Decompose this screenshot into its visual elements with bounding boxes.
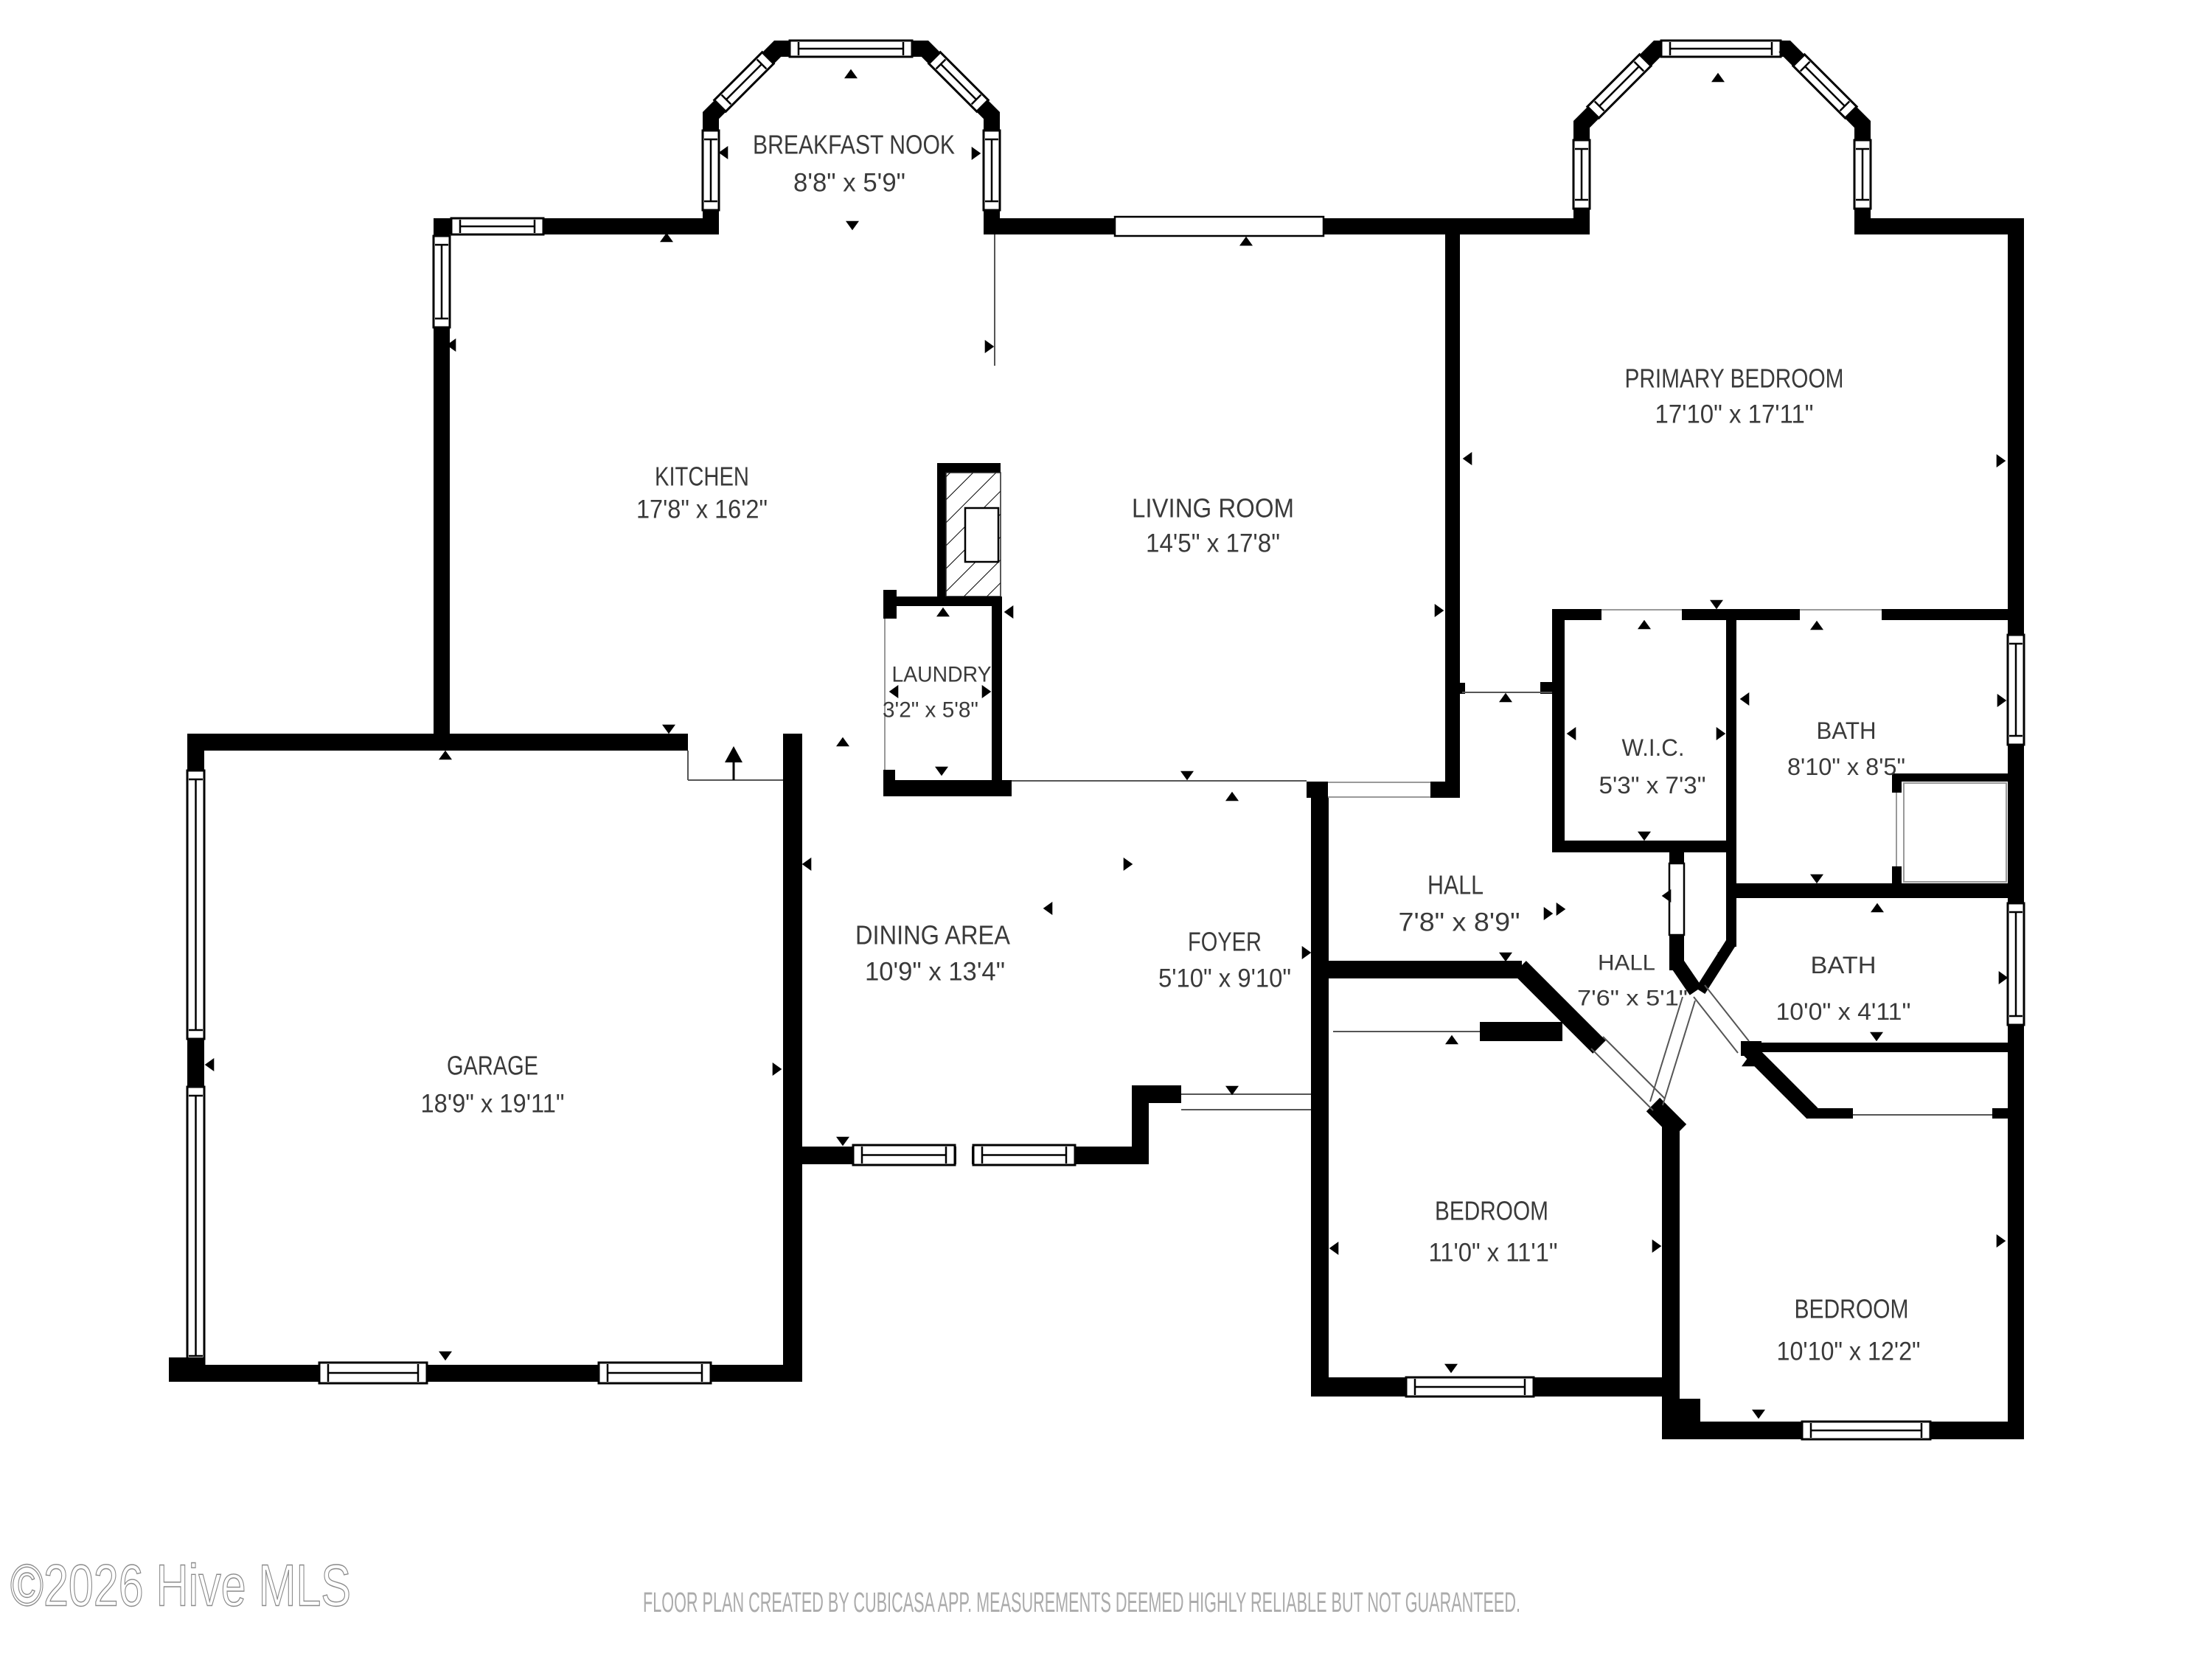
svg-text:10'0" x 4'11": 10'0" x 4'11": [1776, 998, 1911, 1025]
svg-text:BATH: BATH: [1811, 952, 1877, 978]
svg-text:BEDROOM: BEDROOM: [1795, 1294, 1909, 1324]
svg-text:KITCHEN: KITCHEN: [655, 462, 749, 492]
svg-text:LIVING ROOM: LIVING ROOM: [1132, 493, 1294, 524]
svg-text:W.I.C.: W.I.C.: [1622, 734, 1685, 761]
svg-text:BATH: BATH: [1817, 717, 1877, 744]
svg-text:10'10" x 12'2": 10'10" x 12'2": [1777, 1338, 1921, 1366]
svg-text:3'2" x 5'8": 3'2" x 5'8": [883, 698, 978, 723]
svg-text:7'6" x 5'1": 7'6" x 5'1": [1577, 987, 1688, 1011]
svg-text:HALL: HALL: [1598, 951, 1655, 975]
svg-text:7'8" x 8'9": 7'8" x 8'9": [1399, 908, 1520, 937]
svg-text:10'9" x 13'4": 10'9" x 13'4": [865, 958, 1005, 987]
svg-text:8'10" x 8'5": 8'10" x 8'5": [1787, 754, 1905, 780]
svg-text:©2026 Hive MLS: ©2026 Hive MLS: [10, 1553, 351, 1618]
svg-text:HALL: HALL: [1427, 870, 1484, 900]
svg-text:PRIMARY BEDROOM: PRIMARY BEDROOM: [1625, 364, 1844, 394]
svg-text:LAUNDRY: LAUNDRY: [892, 663, 992, 687]
svg-text:14'5" x 17'8": 14'5" x 17'8": [1146, 529, 1280, 558]
svg-text:BEDROOM: BEDROOM: [1435, 1196, 1548, 1226]
svg-text:11'0" x 11'1": 11'0" x 11'1": [1429, 1239, 1558, 1267]
svg-text:8'8" x 5'9": 8'8" x 5'9": [793, 169, 905, 198]
svg-text:5'3" x 7'3": 5'3" x 7'3": [1599, 772, 1706, 799]
svg-text:BREAKFAST NOOK: BREAKFAST NOOK: [753, 130, 955, 160]
svg-text:GARAGE: GARAGE: [447, 1051, 538, 1081]
svg-text:17'8" x 16'2": 17'8" x 16'2": [636, 495, 768, 524]
svg-text:17'10" x 17'11": 17'10" x 17'11": [1655, 400, 1814, 429]
svg-text:FOYER: FOYER: [1188, 927, 1262, 957]
svg-text:18'9" x 19'11": 18'9" x 19'11": [421, 1090, 565, 1119]
svg-text:FLOOR PLAN CREATED BY CUBICASA: FLOOR PLAN CREATED BY CUBICASA APP. MEAS…: [643, 1587, 1520, 1618]
svg-text:DINING AREA: DINING AREA: [855, 920, 1010, 950]
svg-text:5'10" x 9'10": 5'10" x 9'10": [1158, 964, 1291, 993]
